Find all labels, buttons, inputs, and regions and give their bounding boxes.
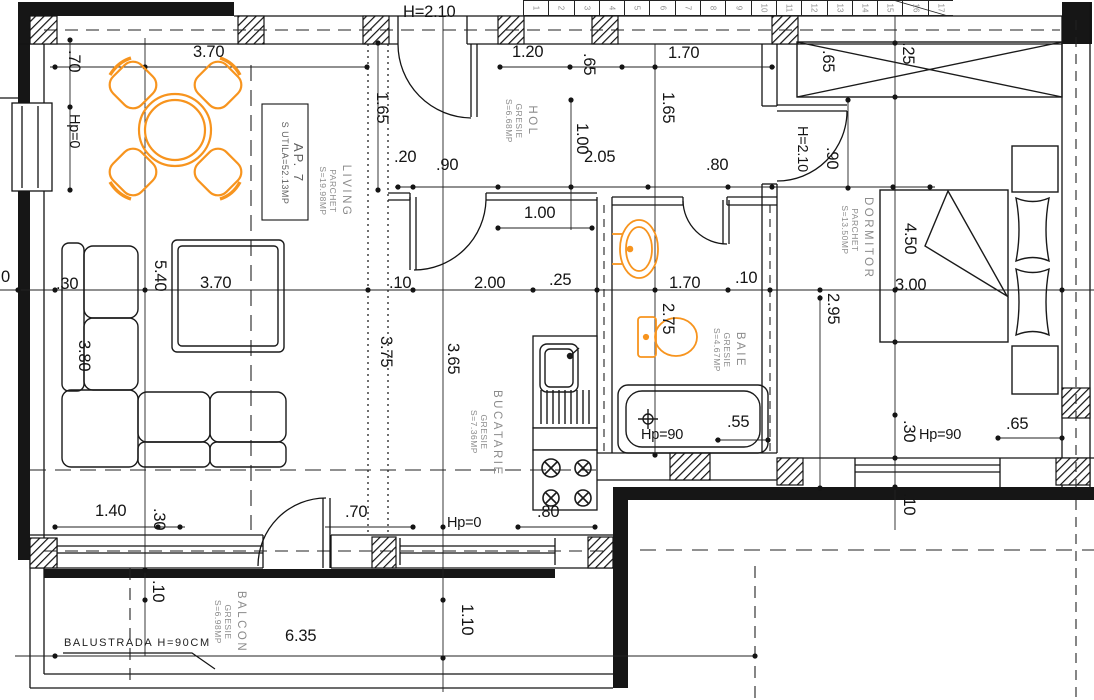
- dim-seg90: .90: [436, 157, 458, 174]
- dim-living-len: 5.40: [152, 260, 169, 291]
- dim-kitchen-365: 3.65: [445, 343, 462, 374]
- dim-living-right: 1.65: [374, 92, 391, 123]
- dim-balcony-110: 1.10: [459, 604, 476, 635]
- dim-bed-door-h: H=2.10: [795, 126, 810, 172]
- dim-bed-65: .65: [1006, 416, 1028, 433]
- room-label-living: LIVING PARCHET S=19.98MP: [318, 162, 352, 220]
- balustrade-note: BALUSTRADA H=90CM: [64, 638, 211, 649]
- stair-tread: 2: [548, 1, 573, 15]
- dim-stove-80: .80: [537, 504, 559, 521]
- dim-living-top: 3.70: [193, 44, 224, 61]
- stair-treads: 1234567891011121314151617: [523, 0, 953, 16]
- balcony-door: [258, 498, 330, 568]
- dim-bed-10: .10: [901, 493, 918, 515]
- dim-kitchen-200: 2.00: [474, 275, 505, 292]
- bath-door: [683, 200, 729, 244]
- dim-balcony-10: .10: [150, 580, 167, 602]
- dim-bed-30: .30: [901, 420, 918, 442]
- kitchen-door: [410, 197, 486, 270]
- nightstand-top: [1012, 146, 1058, 192]
- apartment-label: AP. 7 S UTILA=52.13MP: [280, 108, 306, 218]
- dim-hall-len-v: 1.65: [660, 92, 677, 123]
- dim-balcony-635: 6.35: [285, 628, 316, 645]
- dim-living-side: .70: [66, 50, 83, 72]
- apartment-name: AP. 7: [290, 108, 306, 218]
- orange-fixtures: [105, 57, 697, 357]
- dim-hp0-bottom: Hp=0: [447, 516, 481, 531]
- dim-bath-10: .10: [735, 270, 757, 287]
- room-label-hol: HOL GRESIE S=6.68MP: [504, 94, 538, 148]
- stair-tread: 5: [624, 1, 649, 15]
- stair-tread: 7: [675, 1, 700, 15]
- apartment-area: S UTILA=52.13MP: [280, 108, 291, 218]
- dim-bath-hp90: Hp=90: [641, 428, 683, 443]
- dim-kitchen-375: 3.75: [378, 336, 395, 367]
- dim-hall-window: 1.20: [512, 44, 543, 61]
- floor-plan: 1234567891011121314151617 H=2.10 3.70 1.…: [0, 0, 1094, 700]
- dim-kitchen-open: 1.00: [524, 205, 555, 222]
- stair-tread: 16: [902, 1, 927, 15]
- stair-tread: 9: [725, 1, 750, 15]
- dim-ward-65: .65: [820, 50, 837, 72]
- dim-axis-zero: 0: [1, 269, 10, 286]
- dim-bed-door-w: .90: [824, 147, 841, 169]
- stair-tread: 8: [700, 1, 725, 15]
- room-label-balcon: BALCON GRESIE S=6.98MP: [213, 590, 247, 654]
- bath-sink: [612, 220, 658, 278]
- dining-table: [139, 94, 211, 166]
- stair-tread: 13: [827, 1, 852, 15]
- nightstand-bottom: [1012, 346, 1058, 394]
- room-label-baie: BAIE GRESIE S=4.67MP: [712, 325, 746, 375]
- stair-tread: 17: [928, 1, 953, 15]
- dim-bed-hp90: Hp=90: [919, 428, 961, 443]
- dim-bed-450: 4.50: [902, 223, 919, 254]
- stair-tread: 14: [852, 1, 877, 15]
- dim-sofa-380: 3.80: [76, 340, 93, 371]
- sofa: [62, 243, 286, 467]
- dim-bath-55: .55: [727, 414, 749, 431]
- dim-seg20: .20: [394, 149, 416, 166]
- stair-tread: 12: [801, 1, 826, 15]
- room-label-dormitor: DORMITOR PARCHET S=13.50MP: [840, 197, 874, 263]
- stair-tread: 4: [599, 1, 624, 15]
- dim-bath-170: 1.70: [669, 275, 700, 292]
- dining-chairs: [105, 57, 247, 201]
- stair-tread: 15: [877, 1, 902, 15]
- dim-bed-295: 2.95: [825, 293, 842, 324]
- dim-living-30: .30: [56, 276, 78, 293]
- dim-kitchen-10: .10: [389, 275, 411, 292]
- bedroom-door: [777, 105, 847, 181]
- dim-hall-door-v: 1.00: [574, 123, 591, 154]
- dim-hp0-left: Hp=0: [67, 114, 82, 148]
- dim-counter-25: .25: [549, 272, 571, 289]
- dim-closet-top: 1.70: [668, 45, 699, 62]
- stair-tread: 1: [523, 1, 548, 15]
- dim-bed-300: 3.00: [895, 277, 926, 294]
- stair-tread: 10: [751, 1, 776, 15]
- dim-ward-25: .25: [900, 42, 917, 64]
- room-label-bucatarie: BUCATARIE GRESIE S=7.36MP: [469, 390, 503, 474]
- dim-sofa-140: 1.40: [95, 503, 126, 520]
- dim-living-mid: 3.70: [200, 275, 231, 292]
- stair-tread: 11: [776, 1, 801, 15]
- dim-bath-275: 2.75: [660, 303, 677, 334]
- entrance-door: [398, 44, 477, 118]
- dim-col-65: .65: [581, 53, 598, 75]
- coffee-table: [172, 240, 284, 352]
- dim-kitchen-70: .70: [345, 504, 367, 521]
- dim-bath-door: .80: [706, 157, 728, 174]
- stair-tread: 6: [649, 1, 674, 15]
- dim-sofa-30: .30: [151, 508, 168, 530]
- bed: [880, 190, 1049, 342]
- stair-tread: 3: [574, 1, 599, 15]
- dim-entry-height: H=2.10: [403, 4, 455, 21]
